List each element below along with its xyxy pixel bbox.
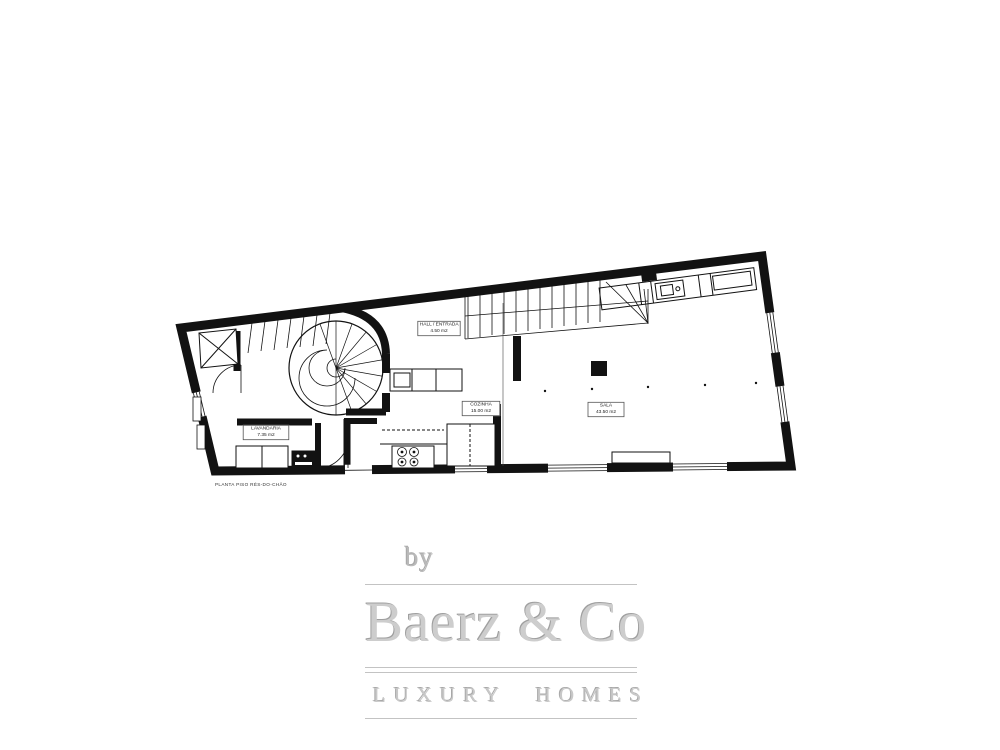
room-label-lavandaria: LAVANDARIA 7.35 m2	[243, 425, 289, 440]
spiral-staircase	[289, 321, 383, 415]
bench	[612, 452, 670, 463]
logo-by: by	[365, 542, 637, 584]
shaft-x-box	[199, 329, 238, 368]
room-area: 15.00 m2	[464, 409, 498, 415]
logo-rule-top	[365, 584, 637, 585]
room-label-hall: HALL / ENTRADA 4.50 m2	[417, 321, 460, 336]
logo-rule-double	[365, 667, 637, 673]
room-name: HALL / ENTRADA	[420, 323, 458, 329]
column	[591, 361, 607, 376]
room-label-cozinha: COZINHA 15.00 m2	[462, 401, 500, 416]
logo-brand-text: Baerz & Co	[365, 587, 637, 659]
page: HALL / ENTRADA 4.50 m2 COZINHA 15.00 m2 …	[0, 0, 1000, 750]
room-name: LAVANDARIA	[245, 427, 287, 433]
room-label-sala: SALA 43.50 m2	[588, 402, 625, 417]
plan-caption: PLANTA PISO RÉS-DO-CHÃO	[215, 483, 287, 488]
room-area: 7.35 m2	[245, 433, 287, 439]
logo-tagline: LUXURY HOMES	[365, 683, 637, 713]
brand-watermark: by Baerz & Co LUXURY HOMES	[365, 542, 637, 719]
room-area: 4.50 m2	[420, 329, 458, 335]
logo-rule-bottom	[365, 718, 637, 719]
room-area: 43.50 m2	[590, 410, 622, 416]
